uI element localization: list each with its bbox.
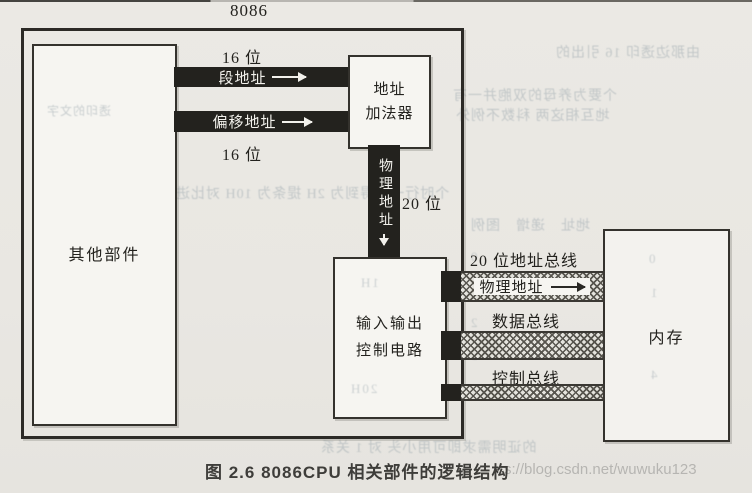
bleedthrough-number: 20H bbox=[349, 377, 377, 400]
io-control-label-line1: 输入输出 bbox=[356, 311, 424, 338]
io-control-label-line2: 控制电路 bbox=[356, 338, 424, 365]
bleedthrough-text: 地互相这两 科数不例外 bbox=[455, 105, 610, 125]
data-bus-bar bbox=[459, 331, 605, 360]
memory-label: 内存 bbox=[648, 324, 684, 348]
offset-address-label: 偏移地址 bbox=[212, 111, 276, 132]
csdn-watermark: s://blog.csdn.net/wuwuku123 bbox=[504, 461, 697, 478]
right-arrow-icon bbox=[272, 76, 306, 78]
scan-edge-artifact bbox=[0, 0, 752, 2]
bleedthrough-number: 1 bbox=[649, 285, 658, 301]
bleedthrough-text: 由那边透印 16 引出的 bbox=[555, 42, 700, 62]
address-adder-label-line1: 地址 bbox=[365, 78, 413, 102]
bleedthrough-number: 2 bbox=[471, 315, 478, 331]
physical-address-bus-label: 物理地址 bbox=[479, 276, 543, 297]
offset-address-bar: 偏移地址 bbox=[174, 111, 350, 132]
address-bus-title: 20 位地址总线 bbox=[470, 247, 578, 271]
bus-connector-stub bbox=[441, 271, 461, 302]
control-bus-bar bbox=[459, 384, 605, 401]
bit-width-top-label: 16 位 bbox=[222, 44, 262, 68]
io-control-box: 输入输出 控制电路 1H 20H bbox=[333, 257, 447, 419]
address-adder-box: 地址 加法器 bbox=[348, 55, 431, 149]
bleedthrough-number: 1H bbox=[359, 271, 379, 294]
chip-label-8086: 8086 bbox=[230, 1, 268, 21]
physical-address-vertical-bar: 物理地址 bbox=[368, 145, 400, 258]
other-components-box: 其他部件 透印的文字 bbox=[32, 44, 177, 426]
physical-address-vertical-label: 物理地址 bbox=[377, 158, 391, 230]
address-adder-label-line2: 加法器 bbox=[365, 102, 413, 126]
memory-box: 内存 0 1 4 bbox=[603, 229, 730, 442]
bit-width-bottom-label: 16 位 bbox=[222, 141, 262, 165]
bit-width-physical-label: 20 位 bbox=[402, 190, 442, 214]
bleedthrough-number: 0 bbox=[647, 251, 656, 267]
scanned-page: 由那边透印 16 引出的 个要为养母的双胞并一有 地互相这两 科数不例外 个时行… bbox=[0, 0, 752, 493]
right-arrow-icon bbox=[551, 286, 585, 288]
address-bus-inner: 物理地址 bbox=[474, 278, 590, 295]
other-components-label: 其他部件 bbox=[68, 241, 140, 265]
figure-caption: 图 2.6 8086CPU 相关部件的逻辑结构 bbox=[205, 458, 510, 483]
bleedthrough-text: 的证明需求即可用小头 对 1 关系 bbox=[320, 437, 537, 457]
bleedthrough-number: 4 bbox=[649, 367, 658, 383]
bleedthrough-text: 透印的文字 bbox=[46, 102, 111, 119]
bus-connector-stub bbox=[441, 384, 461, 401]
address-bus-bar: 物理地址 bbox=[459, 271, 605, 302]
data-bus-title: 数据总线 bbox=[492, 308, 560, 332]
bus-connector-stub bbox=[441, 331, 461, 360]
bleedthrough-text: 地址 递增 图例 bbox=[470, 215, 590, 235]
right-arrow-icon bbox=[282, 121, 312, 123]
segment-address-bar: 段地址 bbox=[174, 67, 350, 87]
down-arrow-icon bbox=[383, 234, 385, 245]
bleedthrough-text: 个要为养母的双胞并一有 bbox=[452, 85, 617, 105]
segment-address-label: 段地址 bbox=[218, 67, 266, 88]
